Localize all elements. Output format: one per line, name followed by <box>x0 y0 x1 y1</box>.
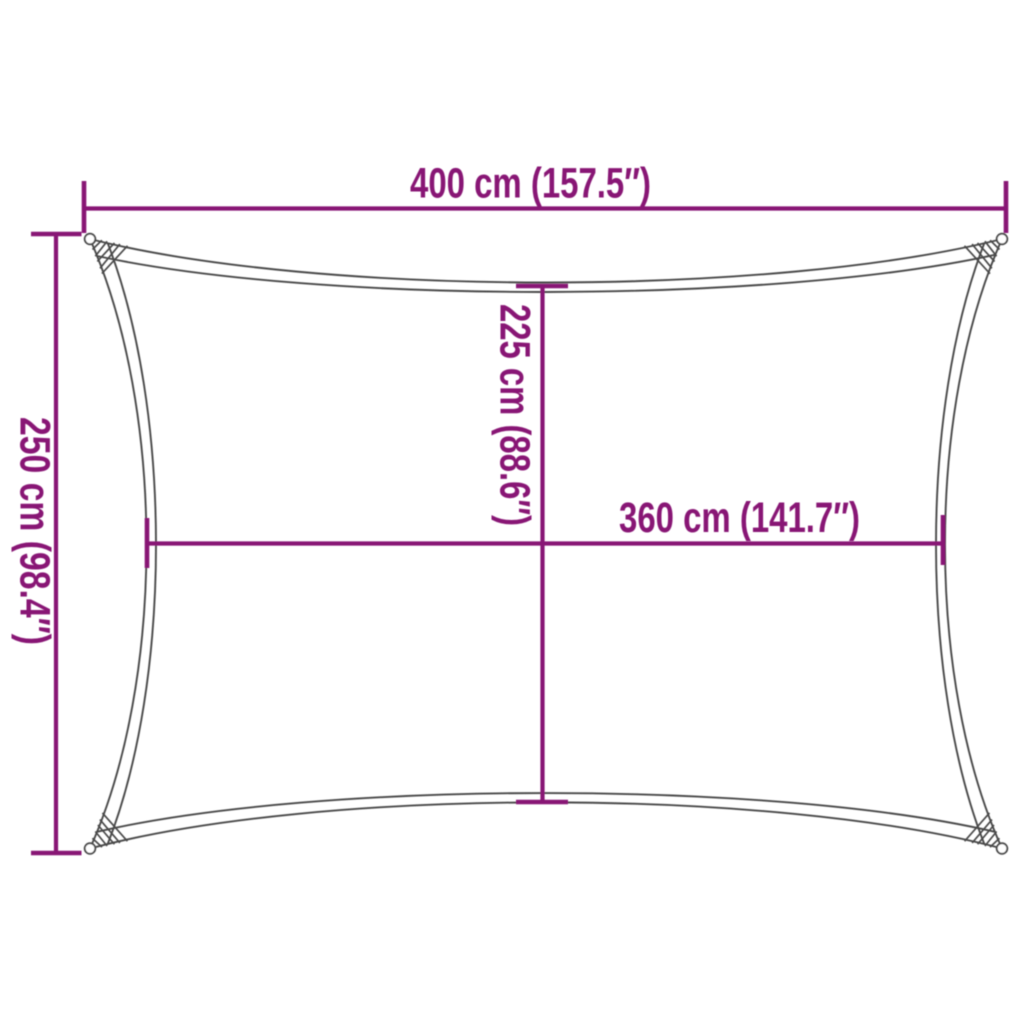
svg-text:360 cm (141.7″): 360 cm (141.7″) <box>619 494 860 542</box>
svg-text:250 cm (98.4″): 250 cm (98.4″) <box>11 417 59 645</box>
svg-text:225 cm (88.6″): 225 cm (88.6″) <box>491 304 539 526</box>
svg-text:400 cm (157.5″): 400 cm (157.5″) <box>410 160 651 208</box>
